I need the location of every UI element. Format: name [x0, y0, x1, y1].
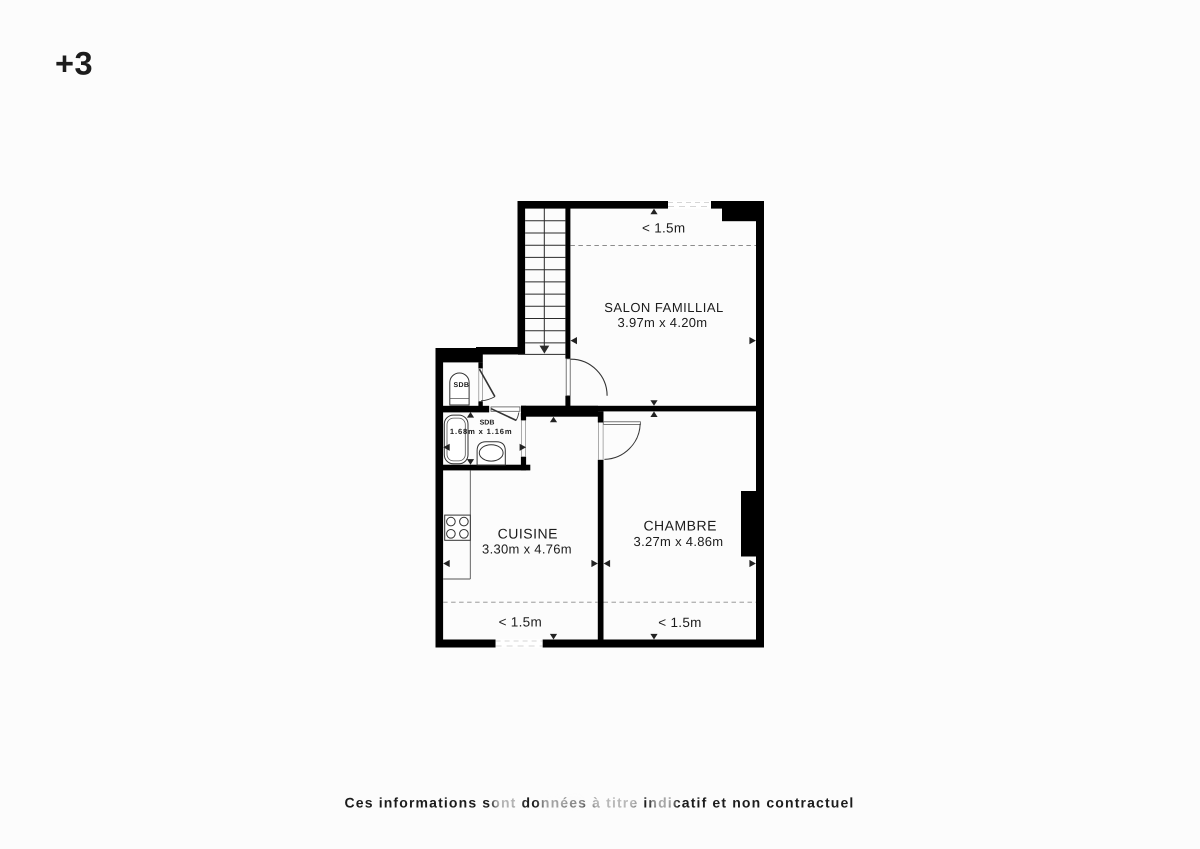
svg-text:< 1.5m: < 1.5m [642, 221, 685, 236]
svg-text:3.30m x 4.76m: 3.30m x 4.76m [482, 541, 572, 556]
svg-text:3.97m x 4.20m: 3.97m x 4.20m [618, 315, 708, 330]
svg-text:1.68m x 1.16m: 1.68m x 1.16m [450, 427, 513, 436]
svg-text:SDB: SDB [480, 420, 495, 427]
svg-text:CHAMBRE: CHAMBRE [643, 518, 717, 534]
svg-text:< 1.5m: < 1.5m [658, 615, 701, 630]
svg-text:SALON FAMILLIAL: SALON FAMILLIAL [604, 300, 724, 315]
svg-text:SDB: SDB [454, 382, 470, 389]
svg-text:< 1.5m: < 1.5m [499, 615, 542, 630]
svg-text:CUISINE: CUISINE [498, 526, 558, 542]
svg-text:3.27m x 4.86m: 3.27m x 4.86m [634, 534, 724, 549]
svg-text:+3: +3 [55, 46, 93, 82]
